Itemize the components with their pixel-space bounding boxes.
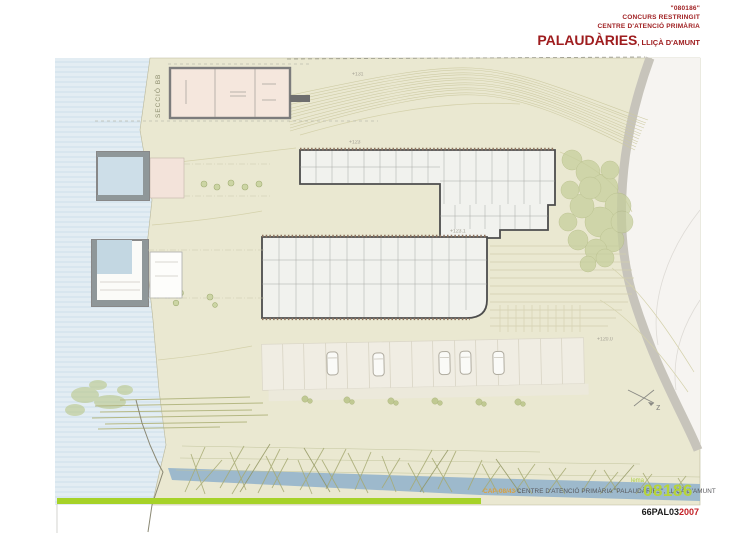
site-plan-drawing: SECCIÓ BB (0, 0, 750, 537)
section-bb-drawing: SECCIÓ BB (153, 68, 310, 118)
sheet-number: 66PAL032007 (642, 507, 699, 517)
competition-board-sheet: SECCIÓ BB (0, 0, 750, 537)
north-letter: z (656, 402, 661, 412)
parking-lot (262, 338, 589, 402)
project-name: PALAUDÀRIES (537, 32, 637, 48)
section-stub (290, 95, 310, 102)
building-lower (262, 236, 487, 319)
section-bb-label: SECCIÓ BB (153, 74, 162, 118)
header-competition: CONCURS RESTRINGIT (622, 14, 700, 21)
level-label: +123.1 (450, 229, 466, 234)
footer-lema-number: 08186 (643, 481, 693, 501)
header-program: CENTRE D'ATENCIÓ PRIMÀRIA (598, 23, 700, 30)
footer-lema-label: lema (620, 478, 644, 484)
green-accent-bar (57, 498, 481, 504)
level-label: +131 (352, 72, 363, 77)
sheet-year: 2007 (679, 507, 699, 517)
page-title: PALAUDÀRIES, LLIÇÀ D'AMUNT (537, 32, 700, 48)
project-location: , LLIÇÀ D'AMUNT (637, 38, 700, 47)
level-label: +120.0 (597, 337, 613, 342)
level-label: +123 (349, 140, 360, 145)
header-code: "080186" (671, 5, 700, 12)
sheet-code: 66PAL03 (642, 507, 679, 517)
footer-ref: CAP-08/43 (483, 488, 515, 495)
